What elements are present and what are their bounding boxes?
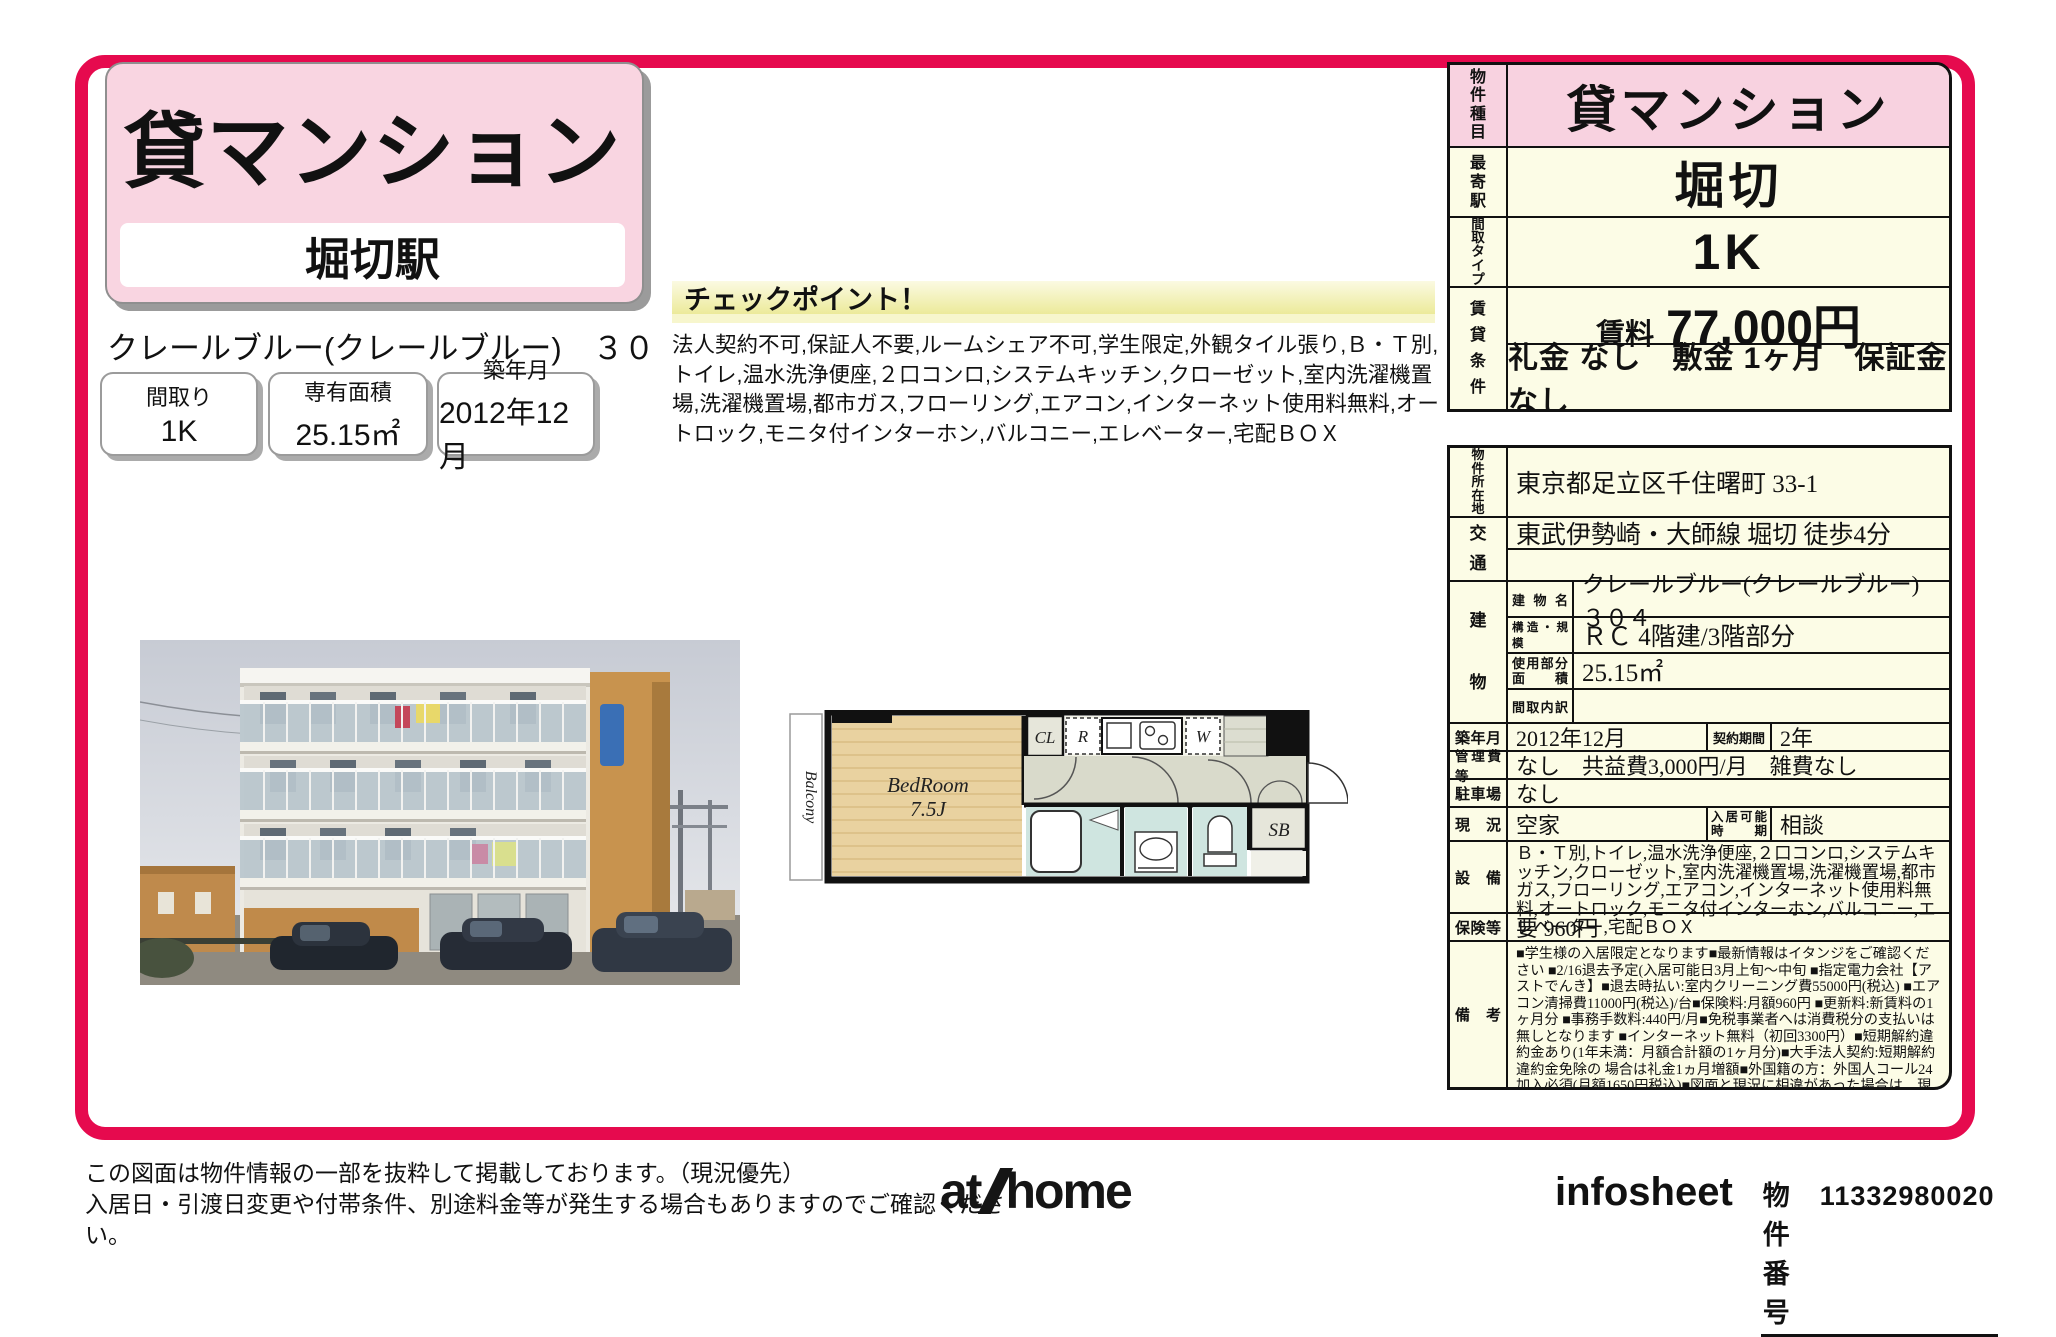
checkpoint-title: チェックポイント！ xyxy=(672,278,927,317)
status-value: 空家 xyxy=(1508,808,1708,842)
parking-label: 駐車場 xyxy=(1450,780,1508,808)
movein-value: 相談 xyxy=(1772,808,1949,842)
summary-terms-label: 賃貸条件 xyxy=(1450,288,1508,409)
summary-terms-value: 礼金 なし 敷金 1ヶ月 保証金 なし xyxy=(1508,345,1949,409)
fees-value: なし 共益費3,000円/月 雑費なし xyxy=(1508,752,1949,780)
equipment-value: Ｂ・Ｔ別,トイレ,温水洗浄便座,２口コンロ,システムキッチン,クローゼット,室内… xyxy=(1508,842,1949,914)
station-badge: 堀切駅 xyxy=(120,223,625,287)
status-label: 現況 xyxy=(1450,808,1508,842)
summary-station-label: 最寄駅 xyxy=(1450,148,1508,218)
balcony-label: Balcony xyxy=(802,771,819,824)
logo-text-at: at xyxy=(940,1162,980,1220)
spec-value: 2012年12月 xyxy=(439,388,593,476)
contract-value: 2年 xyxy=(1772,724,1949,752)
area-value: 25.15㎡ xyxy=(1574,654,1949,690)
washer-label: W xyxy=(1196,727,1212,746)
layout-detail-label: 間取内訳 xyxy=(1508,690,1574,724)
checkpoint-strip xyxy=(672,314,1435,323)
spec-box-area: 専有面積 25.15㎡ xyxy=(268,372,428,456)
detail-table: 物件所在地 東京都足立区千住曙町 33-1 交通 東武伊勢崎・大師線 堀切 徒歩… xyxy=(1447,445,1952,1090)
insurance-label: 保険等 xyxy=(1450,914,1508,942)
footer-disclaimer: この図面は物件情報の一部を抜粋して掲載しております。（現況優先） 入居日・引渡日… xyxy=(85,1158,1005,1251)
spec-label: 間取り xyxy=(146,380,212,412)
built-value: 2012年12月 xyxy=(1508,724,1708,752)
floorplan: Balcony BedRoom 7.5J CL R W SB xyxy=(788,710,1348,885)
athome-logo: at home xyxy=(940,1166,1131,1216)
insurance-value: 要 960円 xyxy=(1508,914,1949,942)
checkpoint-body: 法人契約不可,保証人不要,ルームシェア不可,学生限定,外観タイル張り,Ｂ・Ｔ別,… xyxy=(672,331,1440,449)
spec-label: 築年月 xyxy=(483,353,549,385)
structure-label: 構造・規模 xyxy=(1508,618,1574,654)
infosheet-label: infosheet xyxy=(1555,1170,1733,1215)
checkpoint-band: チェックポイント！ xyxy=(672,281,1435,314)
spec-label: 専有面積 xyxy=(304,375,392,407)
remarks-label: 備考 xyxy=(1450,942,1508,1087)
property-number: 物件番号 11332980020 xyxy=(1761,1174,1999,1337)
access-value: 東武伊勢崎・大師線 堀切 徒歩4分 xyxy=(1508,518,1949,550)
property-number-label: 物件番号 xyxy=(1763,1174,1790,1330)
logo-text-home: home xyxy=(1005,1162,1130,1220)
spec-value: 1K xyxy=(161,415,198,449)
summary-station-value: 堀切 xyxy=(1508,148,1949,218)
building-label: 建物 xyxy=(1450,582,1508,724)
fees-label: 管理費等 xyxy=(1450,752,1508,780)
bedroom-size-label: 7.5J xyxy=(910,797,947,821)
disclaimer-line-2: 入居日・引渡日変更や付帯条件、別途料金等が発生する場合もありますのでご確認くださ… xyxy=(85,1189,1005,1251)
summary-layout-value: 1K xyxy=(1508,218,1949,288)
property-number-value: 11332980020 xyxy=(1820,1181,1995,1212)
shoebox-label: SB xyxy=(1268,820,1290,841)
location-value: 東京都足立区千住曙町 33-1 xyxy=(1508,448,1949,518)
closet-label: CL xyxy=(1035,728,1056,747)
summary-type-label: 物件種目 xyxy=(1450,65,1508,148)
property-type-title: 貸マンション xyxy=(105,68,640,220)
infosheet-line: infosheet 物件番号 11332980020 xyxy=(1555,1170,1990,1337)
access-label: 交通 xyxy=(1450,518,1508,582)
summary-layout-label: 間取タイプ xyxy=(1450,218,1508,288)
spec-box-built: 築年月 2012年12月 xyxy=(437,372,595,456)
bedroom-label: BedRoom xyxy=(887,773,969,797)
structure-value: ＲＣ 4階建/3階部分 xyxy=(1574,618,1949,654)
building-name-value: クレールブルー(クレールブルー) ３０４ xyxy=(1574,582,1949,618)
location-label: 物件所在地 xyxy=(1450,448,1508,518)
disclaimer-line-1: この図面は物件情報の一部を抜粋して掲載しております。（現況優先） xyxy=(85,1158,1005,1189)
parking-value: なし xyxy=(1508,780,1949,808)
summary-type-value: 貸マンション xyxy=(1508,65,1949,148)
building-photo xyxy=(140,640,740,985)
area-label: 使用部分面積 xyxy=(1508,654,1574,690)
building-name-label: 建物名 xyxy=(1508,582,1574,618)
equipment-label: 設備 xyxy=(1450,842,1508,914)
spec-box-layout: 間取り 1K xyxy=(100,372,258,456)
layout-detail-value xyxy=(1574,690,1949,724)
contract-label: 契約期間 xyxy=(1708,724,1772,752)
remarks-value: ■学生様の入居限定となります■最新情報はイタンジをご確認ください ■2/16退去… xyxy=(1508,942,1949,1087)
summary-table: 物件種目 貸マンション 最寄駅 堀切 間取タイプ 1K 賃貸条件 賃料 77,0… xyxy=(1447,62,1952,412)
fridge-label: R xyxy=(1077,727,1089,746)
movein-label: 入居可能時期 xyxy=(1708,808,1772,842)
spec-value: 25.15㎡ xyxy=(295,410,400,454)
